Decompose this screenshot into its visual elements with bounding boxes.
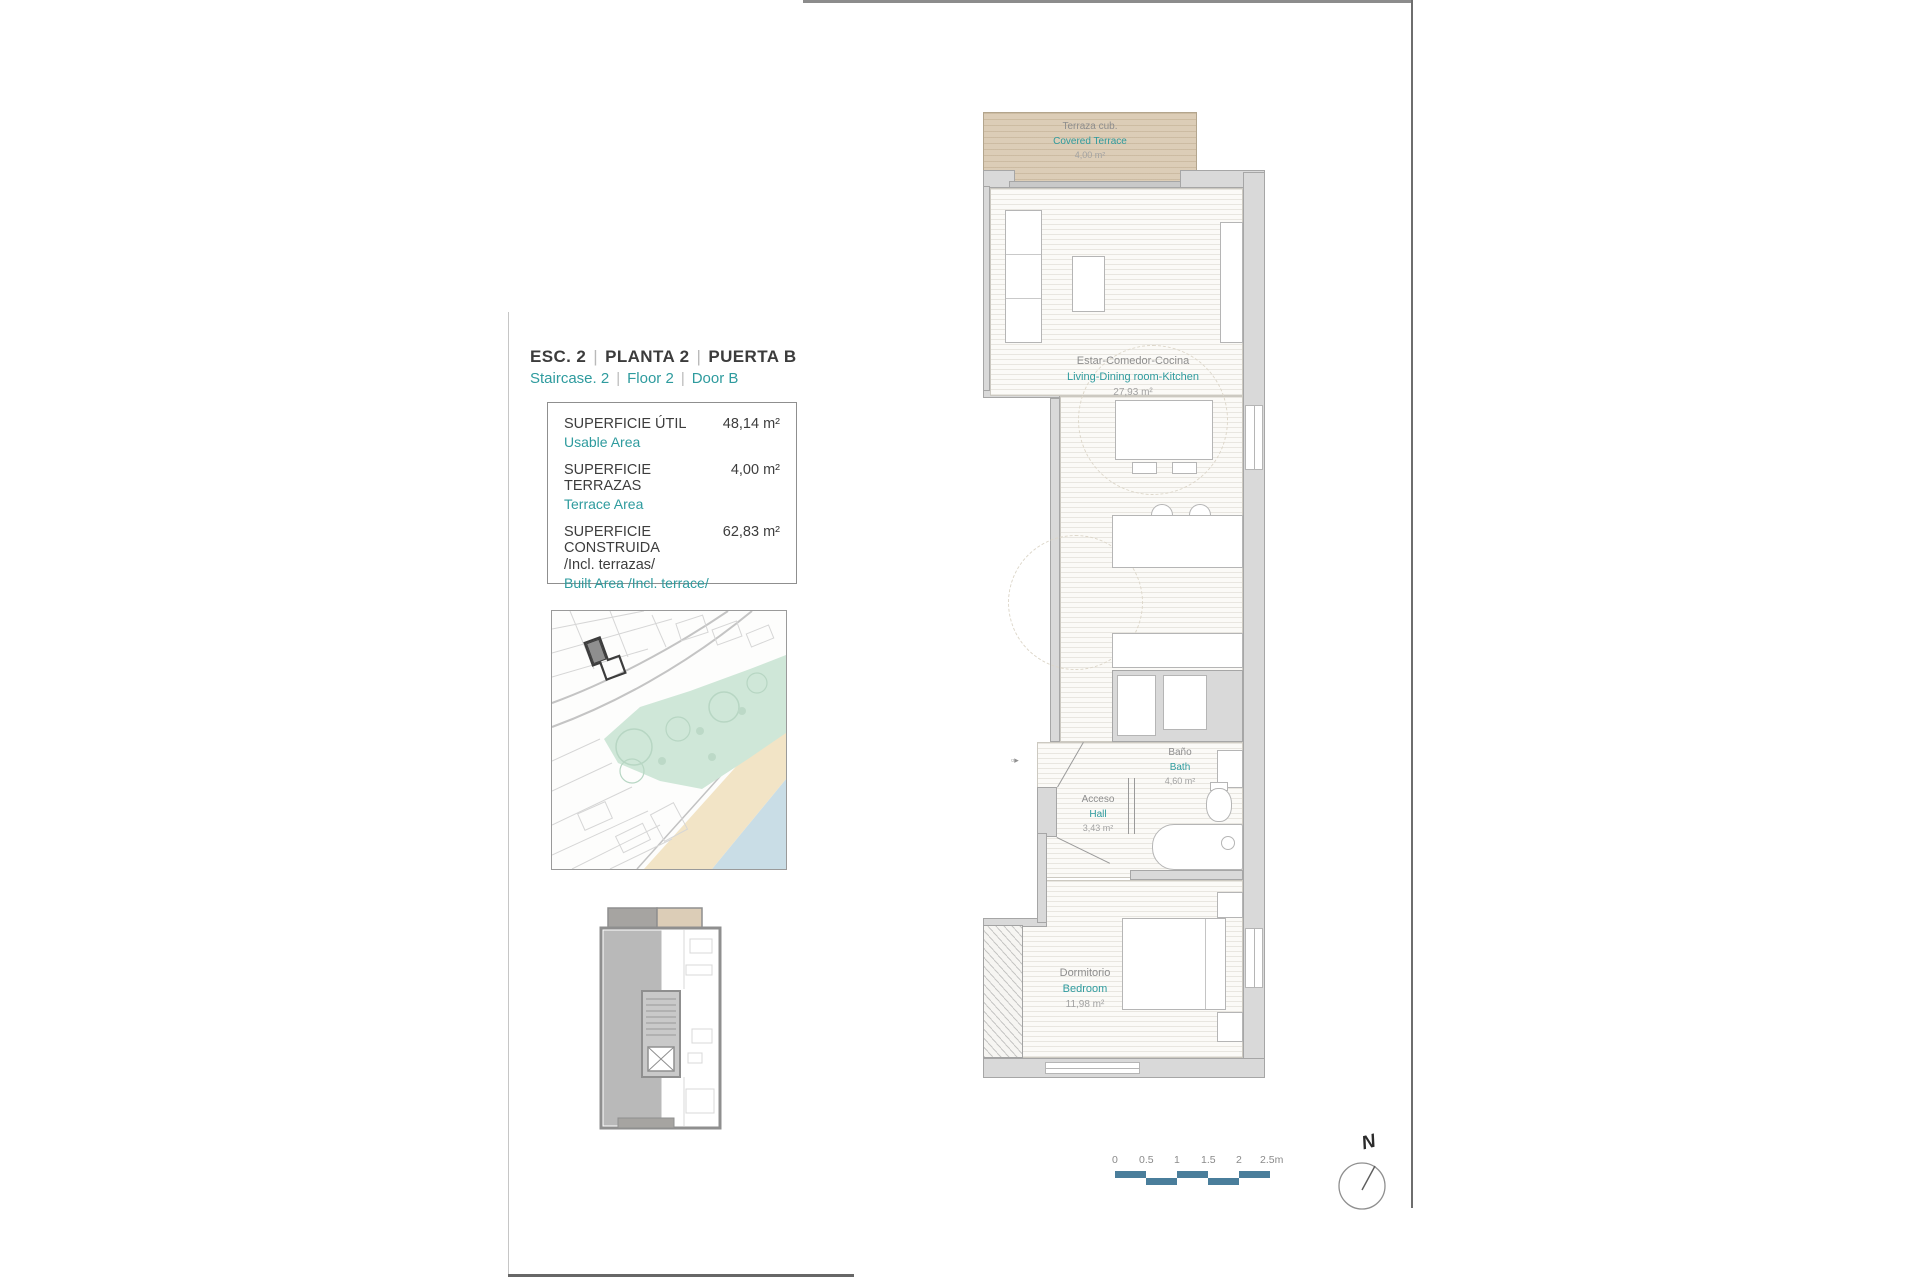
bed: [1122, 918, 1226, 1010]
scale-tick: 0.5: [1139, 1154, 1154, 1166]
bathtub-faucet-icon: [1221, 836, 1235, 850]
kitchen-tall-counter: [1220, 222, 1243, 343]
terrace-area-label-en: Terrace Area: [564, 496, 780, 512]
room-name-es: Estar-Comedor-Cocina: [1053, 354, 1213, 370]
bedroom-side-window: [1245, 928, 1263, 988]
title-separator: |: [690, 347, 709, 366]
built-area-label-es: SUPERFICIE CONSTRUIDA: [564, 524, 723, 556]
terrace-area-value: 4,00 m²: [731, 462, 780, 494]
key-plan-graphic: [598, 903, 724, 1131]
room-area: 4,60 m²: [1135, 775, 1225, 788]
room-label-covered-terrace: Terraza cub. Covered Terrace 4,00 m²: [1010, 120, 1170, 162]
built-area-row: SUPERFICIE CONSTRUIDA62,83 m² /Incl. ter…: [564, 524, 780, 591]
kitchen-island: [1112, 515, 1243, 568]
scale-tick: 0: [1112, 1154, 1118, 1166]
room-area: 3,43 m²: [1058, 822, 1138, 835]
title-floor-es: PLANTA 2: [605, 347, 689, 366]
wall-entry: [1037, 787, 1057, 837]
room-name-es: Dormitorio: [1040, 966, 1130, 982]
wall-bath-bottom: [1130, 870, 1243, 880]
room-label-hall: Acceso Hall 3,43 m²: [1058, 793, 1138, 835]
room-label-bedroom: Dormitorio Bedroom 11,98 m²: [1040, 966, 1130, 1012]
usable-area-label-es: SUPERFICIE ÚTIL: [564, 416, 686, 432]
page-title-en: Staircase. 2|Floor 2|Door B: [530, 370, 738, 387]
built-area-note-es: /Incl. terrazas/: [564, 557, 780, 573]
room-label-bath: Baño Bath 4,60 m²: [1135, 746, 1225, 788]
title-door-es: PUERTA B: [708, 347, 796, 366]
title-separator: |: [609, 370, 627, 387]
bedroom-shutter-closet: [983, 925, 1023, 1058]
closet: [1117, 675, 1156, 736]
usable-area-row: SUPERFICIE ÚTIL48,14 m² Usable Area: [564, 416, 780, 450]
scale-segment: [1177, 1171, 1208, 1178]
title-door-en: Door B: [692, 370, 739, 387]
scale-segment: [1115, 1171, 1146, 1178]
kitchen-lower-counter: [1112, 633, 1243, 668]
page-title-es: ESC. 2|PLANTA 2|PUERTA B: [530, 347, 797, 367]
room-area: 4,00 m²: [1010, 149, 1170, 162]
title-floor-en: Floor 2: [627, 370, 674, 387]
scale-tick: 1: [1174, 1154, 1180, 1166]
bedroom-window: [1045, 1062, 1140, 1074]
closet: [1163, 675, 1207, 730]
room-name-es: Acceso: [1058, 793, 1138, 808]
scale-segment: [1239, 1171, 1270, 1178]
page-border-top: [803, 0, 1413, 3]
nightstand: [1217, 892, 1243, 918]
sofa: [1005, 210, 1042, 343]
dining-chair: [1132, 462, 1157, 474]
room-label-living: Estar-Comedor-Cocina Living-Dining room-…: [1053, 354, 1213, 400]
terrace-door-sill: [1009, 181, 1181, 188]
keyplan-terrace-unit-b: [657, 908, 702, 929]
usable-area-label-en: Usable Area: [564, 434, 780, 450]
page-border-bottom: [508, 1274, 854, 1277]
keyplan-bottom-terrace: [618, 1118, 674, 1128]
room-name-es: Terraza cub.: [1010, 120, 1170, 135]
coffee-table: [1072, 256, 1105, 312]
room-area: 27,93 m²: [1053, 386, 1213, 401]
scale-tick: 1.5: [1201, 1154, 1216, 1166]
room-name-en: Living-Dining room-Kitchen: [1053, 370, 1213, 386]
title-staircase-en: Staircase. 2: [530, 370, 609, 387]
area-summary-box: SUPERFICIE ÚTIL48,14 m² Usable Area SUPE…: [547, 402, 797, 584]
scale-bar: 0 0.5 1 1.5 2 2.5m: [1110, 1154, 1290, 1194]
building-key-plan: [598, 903, 724, 1131]
room-name-en: Bath: [1135, 761, 1225, 776]
terrace-area-label-es: SUPERFICIE TERRAZAS: [564, 462, 731, 494]
dining-chair: [1172, 462, 1197, 474]
site-location-map: [551, 610, 787, 870]
room-name-en: Covered Terrace: [1010, 135, 1170, 150]
page-border-right: [1411, 0, 1413, 1208]
scale-segment: [1146, 1178, 1177, 1185]
plan-sheet: ESC. 2|PLANTA 2|PUERTA B Staircase. 2|Fl…: [0, 0, 1920, 1280]
scale-tick: 2.5m: [1260, 1154, 1283, 1166]
entrance-arrow-icon: ▫▸: [1011, 755, 1019, 766]
toilet: [1206, 788, 1232, 822]
title-separator: |: [674, 370, 692, 387]
title-staircase-es: ESC. 2: [530, 347, 586, 366]
page-border-left: [508, 312, 509, 1276]
scale-tick: 2: [1236, 1154, 1242, 1166]
title-separator: |: [586, 347, 605, 366]
terrace-area-row: SUPERFICIE TERRAZAS4,00 m² Terrace Area: [564, 462, 780, 512]
exterior-mask: [983, 828, 1037, 918]
room-name-en: Bedroom: [1040, 982, 1130, 998]
nightstand: [1217, 1012, 1243, 1042]
room-area: 11,98 m²: [1040, 998, 1130, 1013]
living-window: [1245, 405, 1263, 470]
site-map-graphic: [552, 611, 786, 869]
built-area-value: 62,83 m²: [723, 524, 780, 556]
keyplan-terrace-other: [608, 908, 657, 929]
room-name-en: Hall: [1058, 808, 1138, 823]
scale-segment: [1208, 1178, 1239, 1185]
usable-area-value: 48,14 m²: [723, 416, 780, 432]
dining-table: [1115, 400, 1213, 460]
wall-hall-left: [1037, 833, 1047, 923]
floor-plan: ▫▸ Terraza cub. Covered Terrace 4,00 m² …: [983, 110, 1265, 1082]
wall-left-upper: [983, 186, 990, 396]
subject-building-marker: [585, 633, 626, 682]
room-name-es: Baño: [1135, 746, 1225, 761]
built-area-label-en: Built Area /Incl. terrace/: [564, 575, 780, 591]
